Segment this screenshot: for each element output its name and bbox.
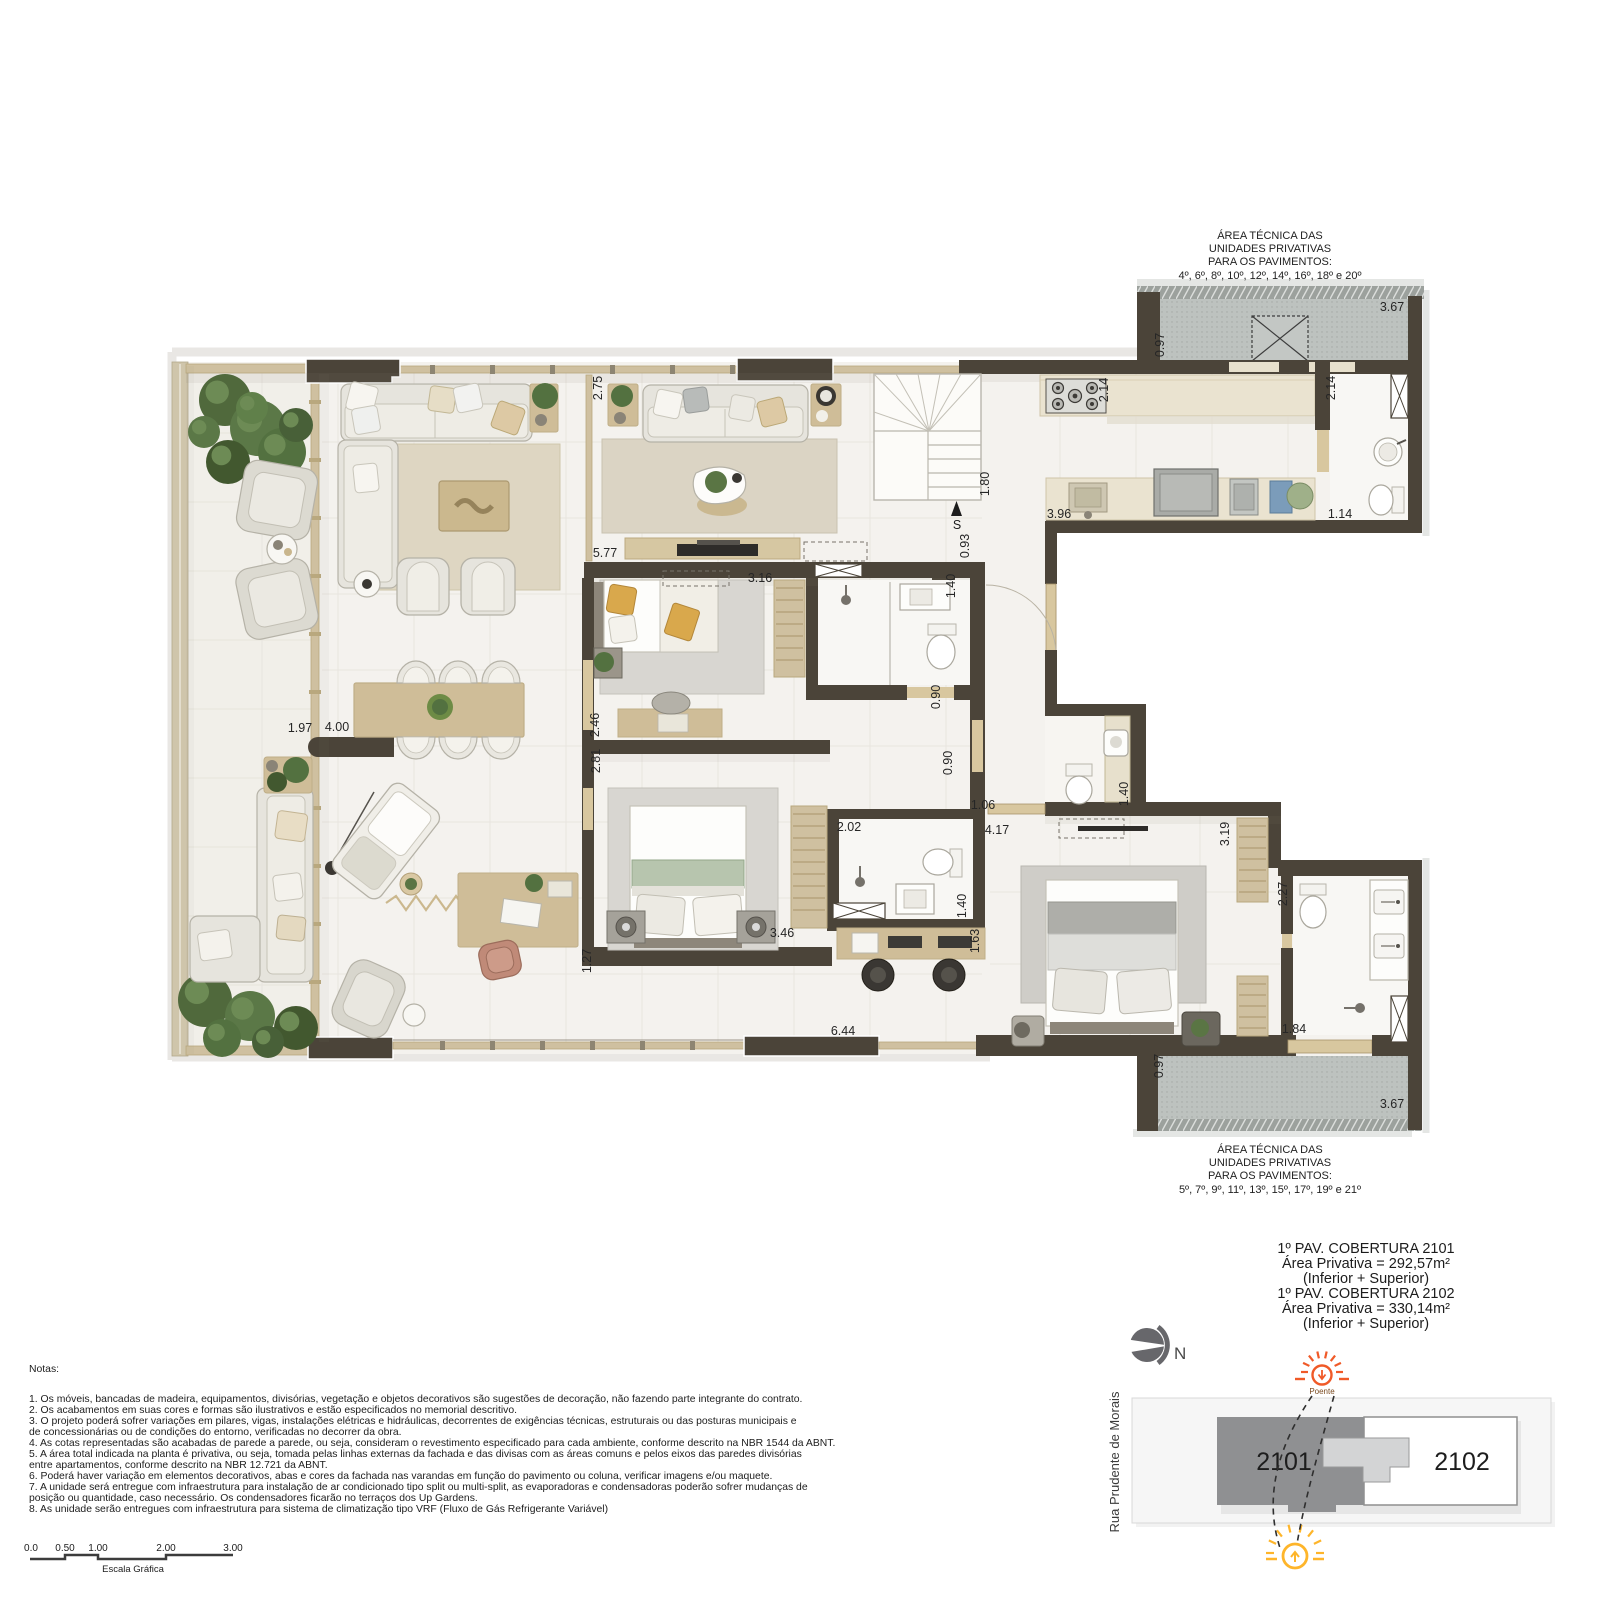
svg-text:0.50: 0.50	[55, 1543, 75, 1554]
svg-text:1.80: 1.80	[978, 472, 992, 496]
svg-text:1.84: 1.84	[1282, 1022, 1306, 1036]
svg-text:1.06: 1.06	[971, 798, 995, 812]
svg-text:0.97: 0.97	[1152, 1054, 1166, 1078]
svg-text:3.46: 3.46	[770, 926, 794, 940]
svg-text:2.75: 2.75	[591, 376, 605, 400]
svg-text:6.44: 6.44	[831, 1024, 855, 1038]
svg-text:de concessionárias ou de condi: de concessionárias ou de condições do en…	[29, 1427, 402, 1438]
svg-text:1.00: 1.00	[88, 1543, 108, 1554]
svg-text:2.02: 2.02	[837, 820, 861, 834]
svg-text:3. O projeto poderá sofrer var: 3. O projeto poderá sofrer variações em …	[29, 1416, 797, 1427]
svg-text:UNIDADES PRIVATIVAS: UNIDADES PRIVATIVAS	[1209, 1157, 1331, 1169]
svg-text:1º PAV. COBERTURA 2101: 1º PAV. COBERTURA 2101	[1277, 1241, 1454, 1257]
svg-text:Área Privativa = 330,14m²: Área Privativa = 330,14m²	[1282, 1300, 1450, 1317]
svg-text:Rua Prudente de Morais: Rua Prudente de Morais	[1107, 1391, 1122, 1532]
svg-text:Escala Gráfica: Escala Gráfica	[102, 1564, 164, 1575]
svg-text:0.90: 0.90	[929, 685, 943, 709]
svg-text:1.14: 1.14	[1328, 507, 1352, 521]
svg-text:4.00: 4.00	[325, 720, 349, 734]
svg-text:1.40: 1.40	[944, 574, 958, 598]
svg-text:3.16: 3.16	[748, 571, 772, 585]
svg-text:1.27: 1.27	[580, 949, 594, 973]
svg-text:ÁREA TÉCNICA DAS: ÁREA TÉCNICA DAS	[1217, 229, 1323, 242]
svg-text:1.63: 1.63	[968, 929, 982, 953]
svg-text:posição ou quantidade, caso ne: posição ou quantidade, caso necessário. …	[29, 1493, 478, 1504]
svg-text:3.19: 3.19	[1218, 822, 1232, 846]
svg-text:7. A unidade será entregue com: 7. A unidade será entregue com infraestr…	[29, 1482, 808, 1493]
svg-text:PARA OS PAVIMENTOS:: PARA OS PAVIMENTOS:	[1208, 1170, 1332, 1182]
svg-text:2.27: 2.27	[1276, 882, 1290, 906]
svg-text:1.40: 1.40	[955, 894, 969, 918]
svg-text:2102: 2102	[1434, 1448, 1490, 1476]
svg-text:1. Os móveis, bancadas de made: 1. Os móveis, bancadas de madeira, equip…	[29, 1394, 802, 1405]
svg-text:0.0: 0.0	[24, 1543, 38, 1554]
svg-text:5.77: 5.77	[593, 546, 617, 560]
svg-text:2101: 2101	[1256, 1448, 1312, 1476]
svg-text:1.97: 1.97	[288, 721, 312, 735]
svg-text:(Inferior + Superior): (Inferior + Superior)	[1303, 1316, 1429, 1332]
svg-text:Poente: Poente	[1309, 1387, 1335, 1396]
svg-text:entre apartamentos, conforme d: entre apartamentos, conforme descrito na…	[29, 1460, 328, 1471]
svg-text:Notas:: Notas:	[29, 1364, 59, 1375]
svg-text:UNIDADES PRIVATIVAS: UNIDADES PRIVATIVAS	[1209, 243, 1331, 255]
svg-text:8. As unidade serão entregues: 8. As unidade serão entregues com infrae…	[29, 1504, 608, 1515]
svg-text:3.00: 3.00	[223, 1543, 243, 1554]
svg-text:5º, 7º, 9º, 11º, 13º, 15º, 17º: 5º, 7º, 9º, 11º, 13º, 15º, 17º, 19º e 21…	[1179, 1184, 1361, 1196]
svg-text:0.90: 0.90	[941, 751, 955, 775]
svg-text:4.17: 4.17	[985, 823, 1009, 837]
svg-text:3.96: 3.96	[1047, 507, 1071, 521]
svg-text:4. As cotas representadas são: 4. As cotas representadas são acabadas d…	[29, 1438, 835, 1449]
svg-text:2.46: 2.46	[588, 713, 602, 737]
svg-text:(Inferior + Superior): (Inferior + Superior)	[1303, 1271, 1429, 1287]
svg-text:N: N	[1174, 1344, 1186, 1363]
svg-text:1º PAV. COBERTURA 2102: 1º PAV. COBERTURA 2102	[1277, 1286, 1454, 1302]
svg-text:ÁREA TÉCNICA DAS: ÁREA TÉCNICA DAS	[1217, 1143, 1323, 1156]
svg-text:0.97: 0.97	[1153, 333, 1167, 357]
svg-text:PARA OS PAVIMENTOS:: PARA OS PAVIMENTOS:	[1208, 256, 1332, 268]
svg-text:6. Poderá haver variação em el: 6. Poderá haver variação em elementos de…	[29, 1471, 772, 1482]
svg-text:4º, 6º, 8º, 10º, 12º, 14º, 16º: 4º, 6º, 8º, 10º, 12º, 14º, 16º, 18º e 20…	[1179, 270, 1362, 282]
svg-text:5. A área total indicada na pl: 5. A área total indicada na planta é pri…	[29, 1449, 802, 1460]
svg-text:3.67: 3.67	[1380, 1097, 1404, 1111]
svg-text:1.40: 1.40	[1117, 782, 1131, 806]
svg-text:2.14: 2.14	[1324, 376, 1338, 400]
svg-text:S: S	[953, 518, 961, 532]
svg-text:2.14: 2.14	[1097, 378, 1111, 402]
svg-text:2.81: 2.81	[589, 749, 603, 773]
svg-text:2.00: 2.00	[156, 1543, 176, 1554]
svg-text:Área Privativa = 292,57m²: Área Privativa = 292,57m²	[1282, 1255, 1450, 1272]
svg-text:3.67: 3.67	[1380, 300, 1404, 314]
svg-text:2. Os acabamentos em suas core: 2. Os acabamentos em suas cores e formas…	[29, 1405, 517, 1416]
svg-text:0.93: 0.93	[958, 534, 972, 558]
